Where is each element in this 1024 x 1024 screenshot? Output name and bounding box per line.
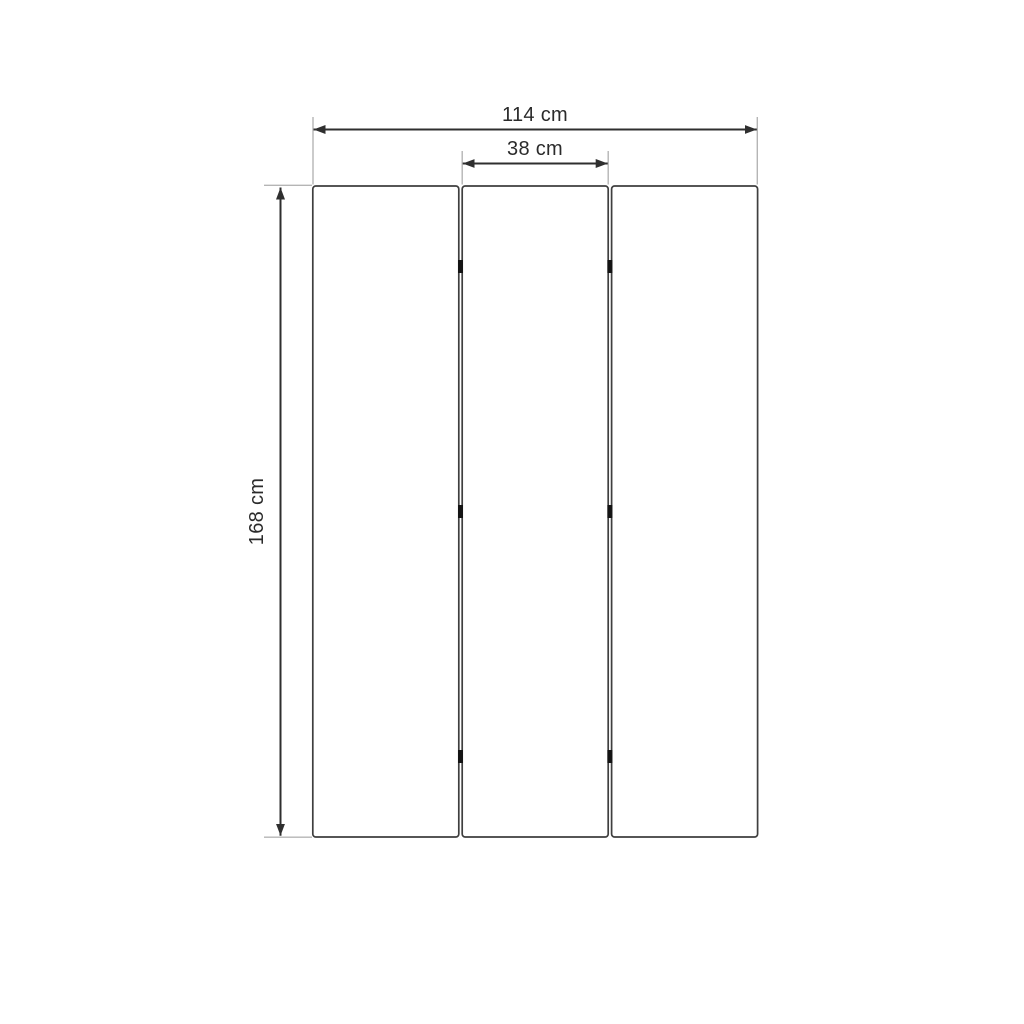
- panel-width-label: 38 cm: [507, 138, 563, 160]
- hinge-mark-left-bottom: [458, 750, 463, 763]
- diagram-canvas: 114 cm 38 cm 168 cm: [0, 0, 1024, 1024]
- hinge-mark-right-top: [607, 260, 612, 273]
- panel-right: [612, 186, 758, 837]
- panel-middle: [462, 186, 608, 837]
- height-label: 168 cm: [246, 478, 268, 545]
- hinge-mark-right-middle: [607, 505, 612, 518]
- panel-left: [313, 186, 459, 837]
- hinge-mark-left-middle: [458, 505, 463, 518]
- panels: [313, 186, 758, 837]
- hinge-mark-left-top: [458, 260, 463, 273]
- hinge-mark-right-bottom: [607, 750, 612, 763]
- dimension-diagram: 114 cm 38 cm 168 cm: [0, 0, 1024, 1024]
- total-width-label: 114 cm: [502, 104, 568, 126]
